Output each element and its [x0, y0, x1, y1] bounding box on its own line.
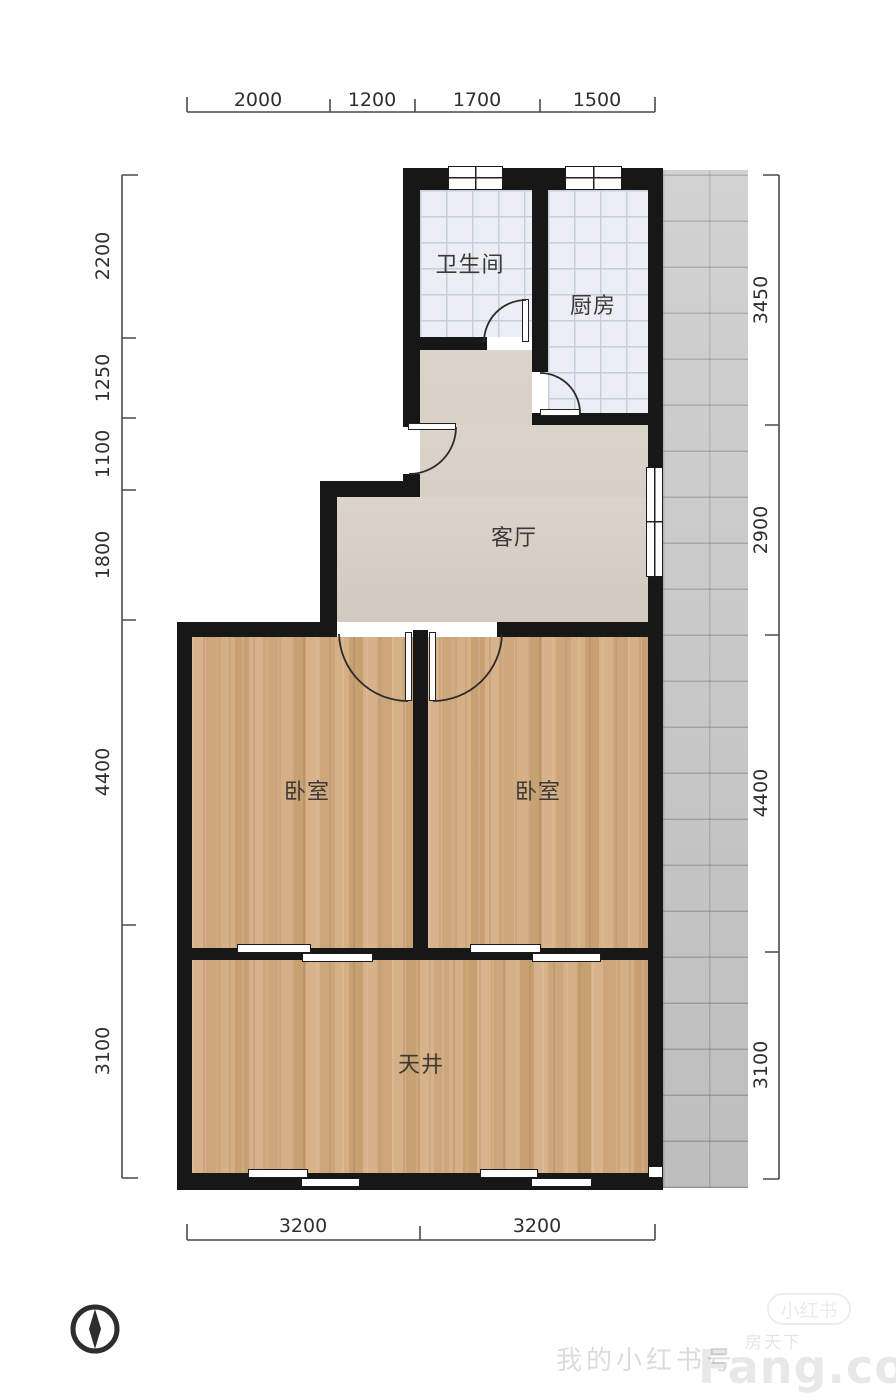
dim-top-1: 2000 — [226, 90, 290, 110]
dim-left-4: 1800 — [93, 523, 113, 587]
dim-left-2: 1250 — [93, 346, 113, 410]
bedroom-left-door-arc — [339, 634, 408, 701]
dim-right-2: 2900 — [751, 498, 771, 562]
dim-left-6: 3100 — [93, 1019, 113, 1083]
dim-top-3: 1700 — [445, 90, 509, 110]
dimension-line-left — [122, 175, 138, 1178]
floorplan-canvas: 2000 1200 1700 1500 2200 1250 1100 1800 … — [0, 0, 896, 1400]
plan-overlay — [0, 0, 896, 1400]
dim-top-2: 1200 — [340, 90, 404, 110]
bathroom-door-arc — [484, 300, 526, 342]
watermark-badge: 小红书 — [767, 1293, 851, 1325]
dim-right-3: 4400 — [751, 761, 771, 825]
dim-top-4: 1500 — [565, 90, 629, 110]
dim-right-1: 3450 — [751, 268, 771, 332]
room-label-bedroom-right: 卧室 — [468, 779, 608, 807]
dim-bottom-1: 3200 — [271, 1216, 335, 1236]
dim-left-1: 2200 — [93, 224, 113, 288]
room-label-courtyard: 天井 — [351, 1052, 491, 1080]
dim-right-4: 3100 — [751, 1033, 771, 1097]
room-label-living: 客厅 — [444, 525, 584, 553]
kitchen-door-arc — [540, 373, 580, 413]
room-label-bedroom-left: 卧室 — [237, 779, 377, 807]
door-arcs — [339, 300, 580, 701]
watermark-site-logo: Fang.com — [698, 1340, 896, 1394]
room-label-bathroom: 卫生间 — [400, 252, 540, 280]
dim-bottom-2: 3200 — [505, 1216, 569, 1236]
bedroom-right-door-arc — [433, 634, 502, 701]
entry-door-arc — [409, 427, 456, 474]
dim-left-3: 1100 — [93, 422, 113, 486]
room-label-kitchen: 厨房 — [523, 293, 663, 321]
dimension-line-bottom — [187, 1224, 655, 1240]
compass-icon — [73, 1307, 117, 1351]
dim-left-5: 4400 — [93, 740, 113, 804]
